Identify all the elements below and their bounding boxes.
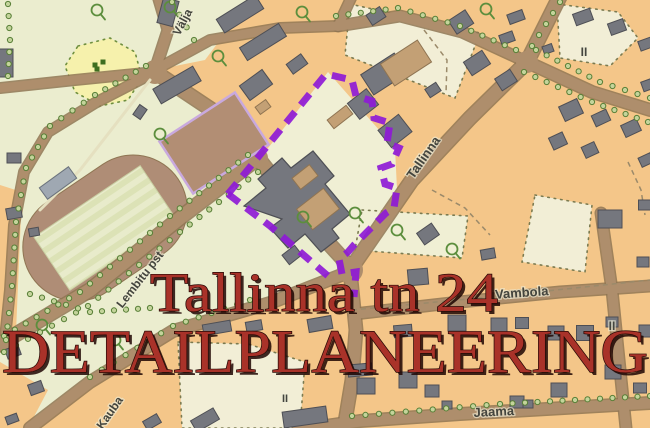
tree-dot bbox=[544, 79, 549, 84]
tree-dot bbox=[395, 5, 400, 10]
tree-dot bbox=[610, 395, 615, 400]
tree-dot bbox=[41, 134, 46, 139]
tree-dot bbox=[513, 47, 518, 52]
tree-dot bbox=[623, 111, 628, 116]
tree-dot bbox=[7, 37, 12, 42]
tree-dot bbox=[622, 395, 627, 400]
tree-dot bbox=[587, 74, 592, 79]
tree-dot bbox=[92, 92, 97, 97]
building bbox=[591, 109, 611, 127]
tree-dot bbox=[555, 58, 560, 63]
tree-dot bbox=[103, 87, 108, 92]
tree-dot bbox=[13, 219, 18, 224]
tree-dot bbox=[576, 69, 581, 74]
tree-dot bbox=[29, 155, 34, 160]
tree-dot bbox=[77, 289, 82, 294]
tree-dot bbox=[543, 21, 548, 26]
tree-dot bbox=[245, 152, 250, 157]
tree-dot bbox=[70, 108, 75, 113]
tree-dot bbox=[18, 192, 23, 197]
tree-dot bbox=[21, 179, 26, 184]
tree-dot bbox=[547, 399, 552, 404]
tree-dot bbox=[444, 406, 449, 411]
building bbox=[548, 132, 567, 150]
building bbox=[480, 248, 496, 260]
tree-dot bbox=[96, 295, 101, 300]
tree-dot bbox=[51, 299, 56, 304]
tree-dot bbox=[147, 230, 152, 235]
tree-dot bbox=[197, 191, 202, 196]
title-line-1: Tallinna tn 24 bbox=[150, 262, 498, 323]
tree-dot bbox=[117, 256, 122, 261]
street-label-jaama: Jaama bbox=[473, 403, 515, 420]
tree-dot bbox=[491, 38, 496, 43]
tree-dot bbox=[81, 100, 86, 105]
building bbox=[598, 210, 622, 228]
tree-dot bbox=[127, 247, 132, 252]
tree-dot bbox=[85, 303, 90, 308]
building bbox=[621, 119, 642, 138]
tree-dot bbox=[106, 287, 111, 292]
building bbox=[639, 200, 650, 210]
tree-dot bbox=[143, 63, 148, 68]
tree-dot bbox=[430, 407, 435, 412]
road-se-arm bbox=[527, 62, 650, 110]
tree-dot bbox=[555, 84, 560, 89]
building bbox=[239, 69, 272, 100]
tree-dot bbox=[39, 295, 44, 300]
tree-dot bbox=[63, 302, 68, 307]
tree-dot bbox=[6, 61, 11, 66]
tree-dot bbox=[578, 94, 583, 99]
tree-dot bbox=[550, 10, 555, 15]
tree-dot bbox=[207, 207, 212, 212]
building bbox=[499, 31, 516, 45]
building bbox=[637, 257, 649, 267]
building bbox=[638, 37, 650, 51]
tree-dot bbox=[5, 1, 10, 6]
cream-ne-block bbox=[557, 4, 638, 66]
tree-dot bbox=[206, 183, 211, 188]
tree-dot bbox=[634, 115, 639, 120]
tree-dot bbox=[585, 397, 590, 402]
tree-dot bbox=[75, 306, 80, 311]
tree-dot bbox=[535, 399, 540, 404]
tree-dot bbox=[645, 119, 650, 124]
tree-dot bbox=[601, 103, 606, 108]
storeys-label-ne: II bbox=[581, 45, 588, 59]
tree-dot bbox=[107, 264, 112, 269]
tree-dot bbox=[187, 198, 192, 203]
tree-dot bbox=[533, 47, 538, 52]
tree-dot bbox=[133, 69, 138, 74]
tree-dot bbox=[457, 405, 462, 410]
tree-dot bbox=[457, 23, 462, 28]
tree-dot bbox=[137, 239, 142, 244]
tree-dot bbox=[433, 16, 438, 21]
tree-dot bbox=[6, 310, 11, 315]
tree-dot bbox=[5, 73, 10, 78]
tree-dot bbox=[371, 9, 376, 14]
tree-symbol bbox=[213, 51, 227, 66]
tree-dot bbox=[135, 306, 140, 311]
tree-dot bbox=[191, 37, 196, 42]
tree-dot bbox=[11, 258, 16, 263]
tree-dot bbox=[610, 83, 615, 88]
map-canvas: VäljaTallinnaLembitu pstKaubaVambolaJaam… bbox=[0, 0, 650, 428]
tree-dot bbox=[7, 49, 12, 54]
tree-dot bbox=[97, 273, 102, 278]
tree-dot bbox=[635, 394, 640, 399]
tree-dot bbox=[157, 246, 162, 251]
tree-dot bbox=[363, 412, 368, 417]
tree-dot bbox=[597, 396, 602, 401]
tree-dot bbox=[612, 107, 617, 112]
tree-dot bbox=[126, 271, 131, 276]
tree-dot bbox=[197, 214, 202, 219]
tree-dot bbox=[536, 32, 541, 37]
tree-dot bbox=[480, 33, 485, 38]
tree-dot bbox=[589, 99, 594, 104]
building bbox=[507, 10, 525, 25]
tree-square bbox=[95, 67, 100, 72]
building bbox=[638, 153, 650, 168]
tree-dot bbox=[123, 75, 128, 80]
tree-dot bbox=[12, 245, 17, 250]
tree-dot bbox=[167, 213, 172, 218]
tree-dot bbox=[408, 9, 413, 14]
tree-dot bbox=[376, 411, 381, 416]
storeys-label-south: II bbox=[282, 393, 288, 405]
tree-dot bbox=[333, 13, 338, 18]
tree-dot bbox=[522, 400, 527, 405]
tree-dot bbox=[6, 13, 11, 18]
tree-dot bbox=[560, 398, 565, 403]
tree-dot bbox=[177, 229, 182, 234]
tree-dot bbox=[246, 177, 251, 182]
tree-dot bbox=[349, 413, 354, 418]
tree-dot bbox=[59, 116, 64, 121]
tree-dot bbox=[7, 25, 12, 30]
tree-dot bbox=[9, 283, 14, 288]
tree-dot bbox=[544, 53, 549, 58]
tree-dot bbox=[445, 20, 450, 25]
building bbox=[641, 78, 650, 92]
tree-dot bbox=[177, 206, 182, 211]
tree-dot bbox=[35, 144, 40, 149]
tree-dot bbox=[8, 297, 13, 302]
tree-dot bbox=[533, 74, 538, 79]
tree-dot bbox=[346, 12, 351, 17]
tree-dot bbox=[417, 408, 422, 413]
tree-dot bbox=[167, 238, 172, 243]
tree-dot bbox=[622, 87, 627, 92]
tree-dot bbox=[597, 79, 602, 84]
tree-dot bbox=[23, 165, 28, 170]
tree-dot bbox=[10, 271, 15, 276]
cream-bottom-right bbox=[522, 195, 592, 272]
tree-dot bbox=[87, 281, 92, 286]
tree-dot bbox=[116, 279, 121, 284]
title-line-2: DETAILPLANEERING bbox=[2, 319, 648, 386]
tree-dot bbox=[113, 81, 118, 86]
tree-dot bbox=[255, 169, 260, 174]
tree-dot bbox=[99, 309, 104, 314]
tree-dot bbox=[403, 409, 408, 414]
tree-dot bbox=[572, 397, 577, 402]
tree-dot bbox=[67, 296, 72, 301]
tree-dot bbox=[565, 63, 570, 68]
tree-dot bbox=[502, 43, 507, 48]
tree-dot bbox=[226, 168, 231, 173]
tree-dot bbox=[567, 89, 572, 94]
building bbox=[255, 100, 271, 115]
tree-dot bbox=[187, 222, 192, 227]
tree-dot bbox=[16, 206, 21, 211]
map-screenshot: VäljaTallinnaLembitu pstKaubaVambolaJaam… bbox=[0, 0, 650, 428]
building bbox=[581, 142, 599, 159]
tree-dot bbox=[390, 410, 395, 415]
building bbox=[559, 99, 584, 122]
tree-dot bbox=[469, 28, 474, 33]
building bbox=[28, 227, 39, 237]
tree-dot bbox=[521, 69, 526, 74]
tree-dot bbox=[27, 291, 32, 296]
tree-dot bbox=[420, 13, 425, 18]
tree-dot bbox=[216, 175, 221, 180]
building bbox=[286, 54, 308, 74]
tree-dot bbox=[635, 91, 640, 96]
tree-dot bbox=[157, 222, 162, 227]
tree-symbol bbox=[481, 4, 495, 19]
tree-dot bbox=[45, 308, 50, 313]
tree-dot bbox=[216, 199, 221, 204]
tree-dot bbox=[236, 160, 241, 165]
tree-dot bbox=[13, 232, 18, 237]
tree-dot bbox=[358, 10, 363, 15]
tree-dot bbox=[47, 123, 52, 128]
road-junction bbox=[516, 51, 538, 73]
tree-dot bbox=[87, 309, 92, 314]
building bbox=[7, 153, 21, 163]
tree-dot bbox=[169, 0, 174, 5]
tree-dot bbox=[383, 7, 388, 12]
tree-dot bbox=[111, 308, 116, 313]
tree-square bbox=[101, 60, 106, 65]
tree-symbol bbox=[297, 7, 311, 22]
tree-dot bbox=[557, 0, 562, 5]
